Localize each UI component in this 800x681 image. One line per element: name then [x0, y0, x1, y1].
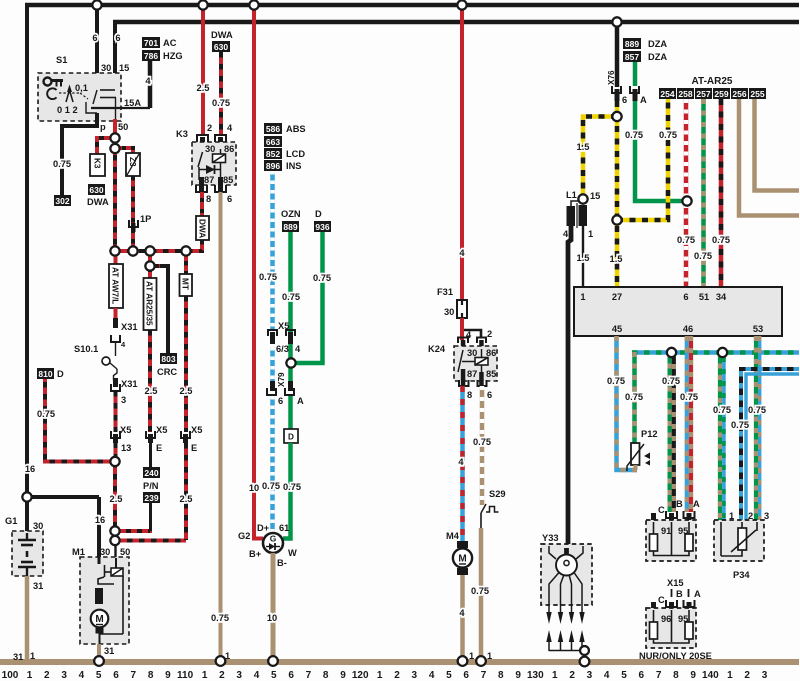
svg-text:4: 4 [79, 670, 85, 681]
svg-text:30: 30 [33, 521, 43, 531]
svg-text:8: 8 [323, 670, 329, 681]
svg-text:4: 4 [604, 670, 610, 681]
svg-text:AC: AC [163, 38, 177, 48]
svg-text:CRC: CRC [157, 367, 177, 377]
svg-text:1: 1 [580, 292, 585, 302]
svg-text:2: 2 [44, 670, 50, 681]
svg-text:K3: K3 [176, 129, 188, 139]
svg-text:S10.1: S10.1 [74, 344, 98, 354]
svg-text:2: 2 [487, 329, 492, 339]
svg-text:110: 110 [177, 670, 194, 681]
svg-text:6: 6 [487, 390, 492, 400]
svg-text:5: 5 [446, 670, 452, 681]
svg-text:M4: M4 [446, 531, 460, 541]
svg-text:6: 6 [639, 670, 645, 681]
svg-text:4: 4 [459, 608, 465, 618]
svg-text:5: 5 [621, 670, 627, 681]
svg-text:0.75: 0.75 [731, 420, 749, 430]
svg-text:INS: INS [286, 161, 302, 171]
svg-text:239: 239 [144, 493, 158, 503]
svg-text:2.5: 2.5 [145, 386, 158, 396]
svg-text:6: 6 [463, 670, 469, 681]
svg-text:7: 7 [656, 670, 662, 681]
svg-text:DZA: DZA [648, 39, 667, 49]
svg-text:45: 45 [612, 324, 622, 334]
svg-text:85: 85 [223, 175, 233, 185]
svg-text:15A: 15A [124, 98, 141, 108]
svg-text:0.75: 0.75 [53, 159, 71, 169]
svg-text:31: 31 [13, 652, 23, 662]
svg-text:3: 3 [236, 670, 242, 681]
svg-text:6: 6 [278, 396, 283, 406]
svg-text:2.5: 2.5 [180, 494, 193, 504]
svg-text:E: E [156, 443, 162, 453]
svg-text:889: 889 [625, 39, 639, 49]
svg-text:0 1 2: 0 1 2 [57, 105, 78, 115]
svg-text:K24: K24 [428, 344, 446, 354]
svg-text:586: 586 [266, 124, 280, 134]
svg-text:6: 6 [683, 292, 688, 302]
svg-text:AT-AR25: AT-AR25 [692, 76, 733, 87]
svg-text:5: 5 [271, 670, 277, 681]
svg-text:889: 889 [283, 222, 297, 232]
svg-text:0.75: 0.75 [37, 409, 55, 419]
svg-text:30: 30 [205, 144, 215, 154]
svg-text:6: 6 [227, 194, 232, 204]
svg-text:0.75: 0.75 [262, 481, 280, 491]
svg-text:G1: G1 [5, 516, 17, 526]
svg-text:87: 87 [204, 175, 214, 185]
svg-text:936: 936 [315, 222, 329, 232]
svg-text:2: 2 [744, 670, 750, 681]
svg-text:259: 259 [714, 89, 728, 99]
svg-text:27: 27 [612, 292, 622, 302]
svg-text:4: 4 [459, 248, 465, 258]
svg-text:DWA: DWA [198, 219, 207, 238]
svg-text:A: A [693, 499, 700, 509]
svg-text:1.5: 1.5 [610, 254, 623, 264]
svg-text:30: 30 [100, 547, 110, 557]
svg-text:D+: D+ [257, 523, 270, 533]
svg-text:8: 8 [148, 670, 154, 681]
svg-text:9: 9 [340, 670, 346, 681]
svg-text:6/3: 6/3 [276, 344, 289, 354]
svg-text:34: 34 [716, 292, 727, 302]
svg-text:B: B [676, 589, 683, 599]
svg-text:4: 4 [429, 670, 435, 681]
svg-text:W: W [288, 548, 297, 558]
svg-text:3: 3 [762, 670, 768, 681]
svg-text:DZA: DZA [648, 52, 667, 62]
svg-text:140: 140 [702, 670, 719, 681]
svg-text:15: 15 [119, 63, 129, 73]
svg-text:2: 2 [394, 670, 400, 681]
svg-text:0.75: 0.75 [712, 235, 730, 245]
svg-text:X5: X5 [156, 425, 167, 435]
svg-text:9: 9 [515, 670, 521, 681]
svg-text:1: 1 [377, 670, 383, 681]
svg-text:AT AR25/35: AT AR25/35 [145, 281, 154, 326]
svg-text:254: 254 [660, 89, 674, 99]
svg-text:6: 6 [113, 670, 119, 681]
svg-text:1.5: 1.5 [577, 142, 590, 152]
svg-text:0.75: 0.75 [625, 130, 643, 140]
svg-text:1: 1 [552, 670, 558, 681]
svg-text:0.75: 0.75 [607, 376, 625, 386]
svg-text:0,1: 0,1 [75, 83, 88, 93]
svg-text:91: 91 [661, 526, 671, 536]
svg-text:1: 1 [27, 670, 33, 681]
svg-text:130: 130 [527, 670, 544, 681]
svg-text:0.75: 0.75 [677, 235, 695, 245]
svg-text:53: 53 [753, 324, 763, 334]
svg-text:30: 30 [101, 63, 111, 73]
svg-text:HZG: HZG [163, 51, 183, 61]
svg-text:2.5: 2.5 [110, 494, 123, 504]
svg-text:0.75: 0.75 [212, 98, 230, 108]
svg-text:6: 6 [92, 33, 97, 43]
svg-text:10: 10 [267, 613, 277, 623]
svg-text:P12: P12 [641, 429, 658, 439]
svg-text:C: C [658, 505, 665, 515]
svg-text:7: 7 [306, 670, 312, 681]
svg-text:2.5: 2.5 [197, 83, 210, 93]
svg-text:663: 663 [266, 137, 280, 147]
svg-text:302: 302 [55, 196, 69, 206]
svg-text:803: 803 [161, 354, 175, 364]
svg-text:95: 95 [678, 614, 688, 624]
svg-text:X31: X31 [121, 322, 138, 332]
svg-text:630: 630 [89, 185, 103, 195]
svg-text:30: 30 [467, 348, 477, 358]
svg-text:0.75: 0.75 [662, 376, 680, 386]
svg-text:31: 31 [104, 646, 114, 656]
svg-text:8: 8 [498, 670, 504, 681]
svg-text:100: 100 [2, 670, 19, 681]
svg-text:120: 120 [352, 670, 369, 681]
svg-text:857: 857 [625, 52, 639, 62]
svg-text:OZN: OZN [281, 209, 301, 219]
svg-text:S29: S29 [489, 489, 506, 499]
svg-text:16: 16 [95, 515, 105, 525]
svg-text:630: 630 [214, 42, 228, 52]
svg-text:0.75: 0.75 [283, 482, 301, 492]
svg-text:6: 6 [115, 33, 120, 43]
svg-text:3: 3 [121, 395, 126, 405]
svg-text:K3: K3 [93, 158, 102, 169]
svg-text:51: 51 [699, 292, 709, 302]
svg-text:8: 8 [206, 194, 211, 204]
svg-text:46: 46 [683, 324, 693, 334]
svg-text:P/N: P/N [143, 481, 159, 491]
svg-text:1P: 1P [140, 214, 151, 224]
svg-text:G: G [270, 534, 277, 544]
svg-text:810: 810 [38, 369, 52, 379]
svg-text:Y33: Y33 [542, 533, 559, 543]
svg-text:1.5: 1.5 [577, 253, 590, 263]
svg-text:852: 852 [266, 149, 280, 159]
svg-text:C: C [658, 595, 665, 605]
svg-text:7: 7 [481, 670, 487, 681]
svg-text:6: 6 [622, 95, 627, 105]
svg-text:2.5: 2.5 [180, 386, 193, 396]
svg-text:DWA: DWA [87, 197, 109, 207]
svg-text:6: 6 [288, 670, 294, 681]
svg-text:10: 10 [249, 483, 259, 493]
svg-text:S1: S1 [56, 55, 67, 65]
svg-text:3: 3 [412, 670, 418, 681]
svg-text:ABS: ABS [286, 124, 306, 134]
svg-text:0.75: 0.75 [471, 586, 489, 596]
svg-text:A: A [694, 589, 701, 599]
svg-text:A: A [297, 396, 304, 406]
svg-text:258: 258 [678, 89, 692, 99]
svg-text:4: 4 [458, 457, 464, 467]
svg-text:896: 896 [266, 161, 280, 171]
svg-text:0.75: 0.75 [625, 392, 643, 402]
svg-text:X15: X15 [667, 578, 684, 588]
svg-text:3: 3 [587, 670, 593, 681]
svg-text:0.75: 0.75 [473, 437, 491, 447]
svg-text:2: 2 [569, 670, 575, 681]
svg-text:0.75: 0.75 [748, 405, 766, 415]
svg-text:4: 4 [145, 76, 151, 86]
svg-text:255: 255 [750, 89, 764, 99]
svg-text:15: 15 [590, 191, 600, 201]
svg-text:G2: G2 [238, 531, 250, 541]
svg-text:D: D [57, 369, 64, 379]
svg-text:X31: X31 [121, 379, 138, 389]
svg-text:LCD: LCD [286, 149, 305, 159]
svg-text:X5: X5 [191, 425, 202, 435]
svg-text:MT: MT [181, 278, 190, 290]
svg-text:0.75: 0.75 [713, 405, 731, 415]
svg-text:240: 240 [144, 468, 158, 478]
svg-text:9: 9 [165, 670, 171, 681]
svg-text:4: 4 [563, 229, 569, 239]
svg-text:2: 2 [219, 670, 225, 681]
svg-text:1: 1 [202, 670, 208, 681]
svg-text:31: 31 [33, 581, 43, 591]
svg-text:87: 87 [467, 369, 477, 379]
svg-text:2: 2 [207, 123, 212, 133]
svg-text:0.75: 0.75 [282, 292, 300, 302]
svg-text:96: 96 [661, 614, 671, 624]
svg-text:M: M [458, 554, 466, 565]
svg-text:13: 13 [121, 443, 131, 453]
svg-text:D: D [315, 209, 322, 219]
svg-text:0.75: 0.75 [211, 613, 229, 623]
svg-text:X79: X79 [277, 372, 286, 387]
svg-text:M1: M1 [72, 547, 85, 557]
svg-text:1: 1 [727, 670, 733, 681]
svg-text:F31: F31 [437, 287, 453, 297]
svg-text:p: p [100, 122, 106, 132]
svg-text:95: 95 [678, 526, 688, 536]
svg-text:16: 16 [25, 464, 35, 474]
svg-text:9: 9 [690, 670, 696, 681]
svg-text:30: 30 [444, 307, 454, 317]
svg-text:M: M [95, 614, 103, 625]
svg-text:86: 86 [486, 348, 496, 358]
svg-text:786: 786 [144, 51, 158, 61]
svg-text:0.75: 0.75 [694, 251, 712, 261]
svg-text:701: 701 [144, 38, 158, 48]
svg-text:8: 8 [467, 390, 472, 400]
svg-text:X76: X76 [607, 70, 616, 85]
svg-text:0.75: 0.75 [680, 392, 698, 402]
svg-text:0.75: 0.75 [259, 272, 277, 282]
svg-text:DWA: DWA [211, 30, 233, 40]
svg-text:1: 1 [30, 651, 35, 661]
svg-text:B+: B+ [249, 549, 262, 559]
svg-text:61: 61 [279, 523, 289, 533]
svg-text:7: 7 [131, 670, 137, 681]
svg-text:86: 86 [224, 144, 234, 154]
svg-text:257: 257 [696, 89, 710, 99]
svg-text:50: 50 [120, 547, 130, 557]
svg-text:5: 5 [96, 670, 102, 681]
svg-text:L1: L1 [566, 190, 577, 200]
svg-text:B: B [676, 499, 683, 509]
svg-text:0.75: 0.75 [313, 273, 331, 283]
svg-text:4: 4 [254, 670, 260, 681]
svg-text:3: 3 [61, 670, 67, 681]
svg-text:E: E [191, 443, 197, 453]
svg-text:AT AW7/L: AT AW7/L [111, 267, 120, 304]
svg-text:1: 1 [588, 229, 593, 239]
svg-text:256: 256 [732, 89, 746, 99]
svg-text:B-: B- [277, 558, 287, 568]
svg-text:50: 50 [118, 122, 128, 132]
svg-text:4: 4 [227, 123, 233, 133]
svg-text:A: A [640, 95, 647, 105]
svg-text:4: 4 [295, 344, 301, 354]
svg-text:8: 8 [673, 670, 679, 681]
svg-text:P34: P34 [733, 570, 750, 580]
svg-text:X5: X5 [120, 425, 131, 435]
svg-text:0.75: 0.75 [659, 130, 677, 140]
svg-text:85: 85 [486, 369, 496, 379]
svg-text:D: D [288, 433, 294, 442]
